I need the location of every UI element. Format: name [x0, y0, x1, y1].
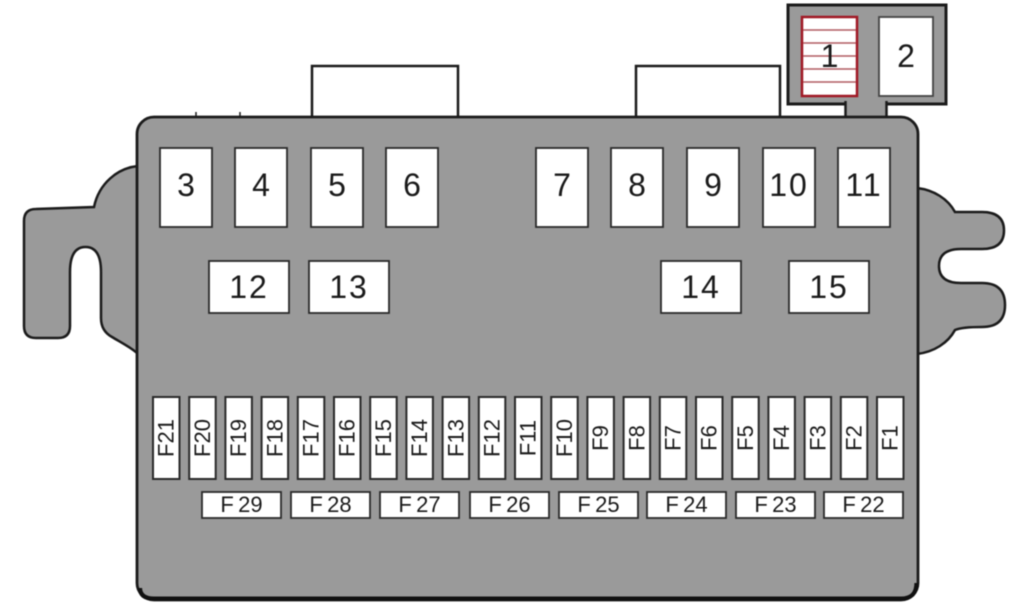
svg-text:F11: F11 — [516, 420, 541, 456]
svg-text:F18: F18 — [262, 419, 287, 457]
svg-text:8: 8 — [628, 167, 646, 203]
svg-text:F21: F21 — [154, 419, 179, 457]
svg-text:F6: F6 — [697, 425, 722, 451]
svg-text:14: 14 — [681, 269, 721, 305]
svg-text:3: 3 — [177, 167, 195, 203]
svg-text:10: 10 — [769, 167, 809, 203]
svg-text:9: 9 — [704, 167, 722, 203]
svg-text:F 29: F 29 — [220, 492, 262, 517]
svg-text:F 28: F 28 — [309, 492, 351, 517]
svg-text:13: 13 — [329, 269, 369, 305]
svg-text:F14: F14 — [407, 419, 432, 457]
svg-text:2: 2 — [897, 38, 915, 74]
svg-text:F17: F17 — [299, 419, 324, 457]
svg-text:F5: F5 — [733, 425, 758, 451]
svg-text:F16: F16 — [335, 419, 360, 457]
svg-text:F 22: F 22 — [842, 492, 884, 517]
svg-text:4: 4 — [252, 167, 270, 203]
svg-text:F8: F8 — [624, 425, 649, 451]
svg-text:F 24: F 24 — [665, 492, 707, 517]
svg-text:7: 7 — [553, 167, 571, 203]
svg-text:F 23: F 23 — [754, 492, 796, 517]
svg-text:F19: F19 — [226, 419, 251, 457]
svg-text:12: 12 — [229, 269, 269, 305]
svg-text:F20: F20 — [190, 419, 215, 457]
svg-text:F12: F12 — [480, 419, 505, 457]
svg-text:15: 15 — [809, 269, 849, 305]
svg-text:1: 1 — [821, 38, 839, 74]
svg-text:5: 5 — [328, 167, 346, 203]
svg-text:F10: F10 — [552, 419, 577, 457]
svg-text:F1: F1 — [878, 425, 903, 451]
svg-text:F 27: F 27 — [398, 492, 440, 517]
svg-text:F15: F15 — [371, 419, 396, 457]
svg-text:6: 6 — [403, 167, 421, 203]
svg-text:F13: F13 — [443, 419, 468, 457]
svg-text:F7: F7 — [661, 425, 686, 451]
svg-text:F3: F3 — [805, 425, 830, 451]
svg-text:F9: F9 — [588, 425, 613, 451]
svg-text:F2: F2 — [842, 425, 867, 451]
svg-text:F 25: F 25 — [577, 492, 619, 517]
svg-text:F 26: F 26 — [488, 492, 530, 517]
svg-text:F4: F4 — [769, 425, 794, 451]
svg-text:11: 11 — [845, 167, 882, 203]
